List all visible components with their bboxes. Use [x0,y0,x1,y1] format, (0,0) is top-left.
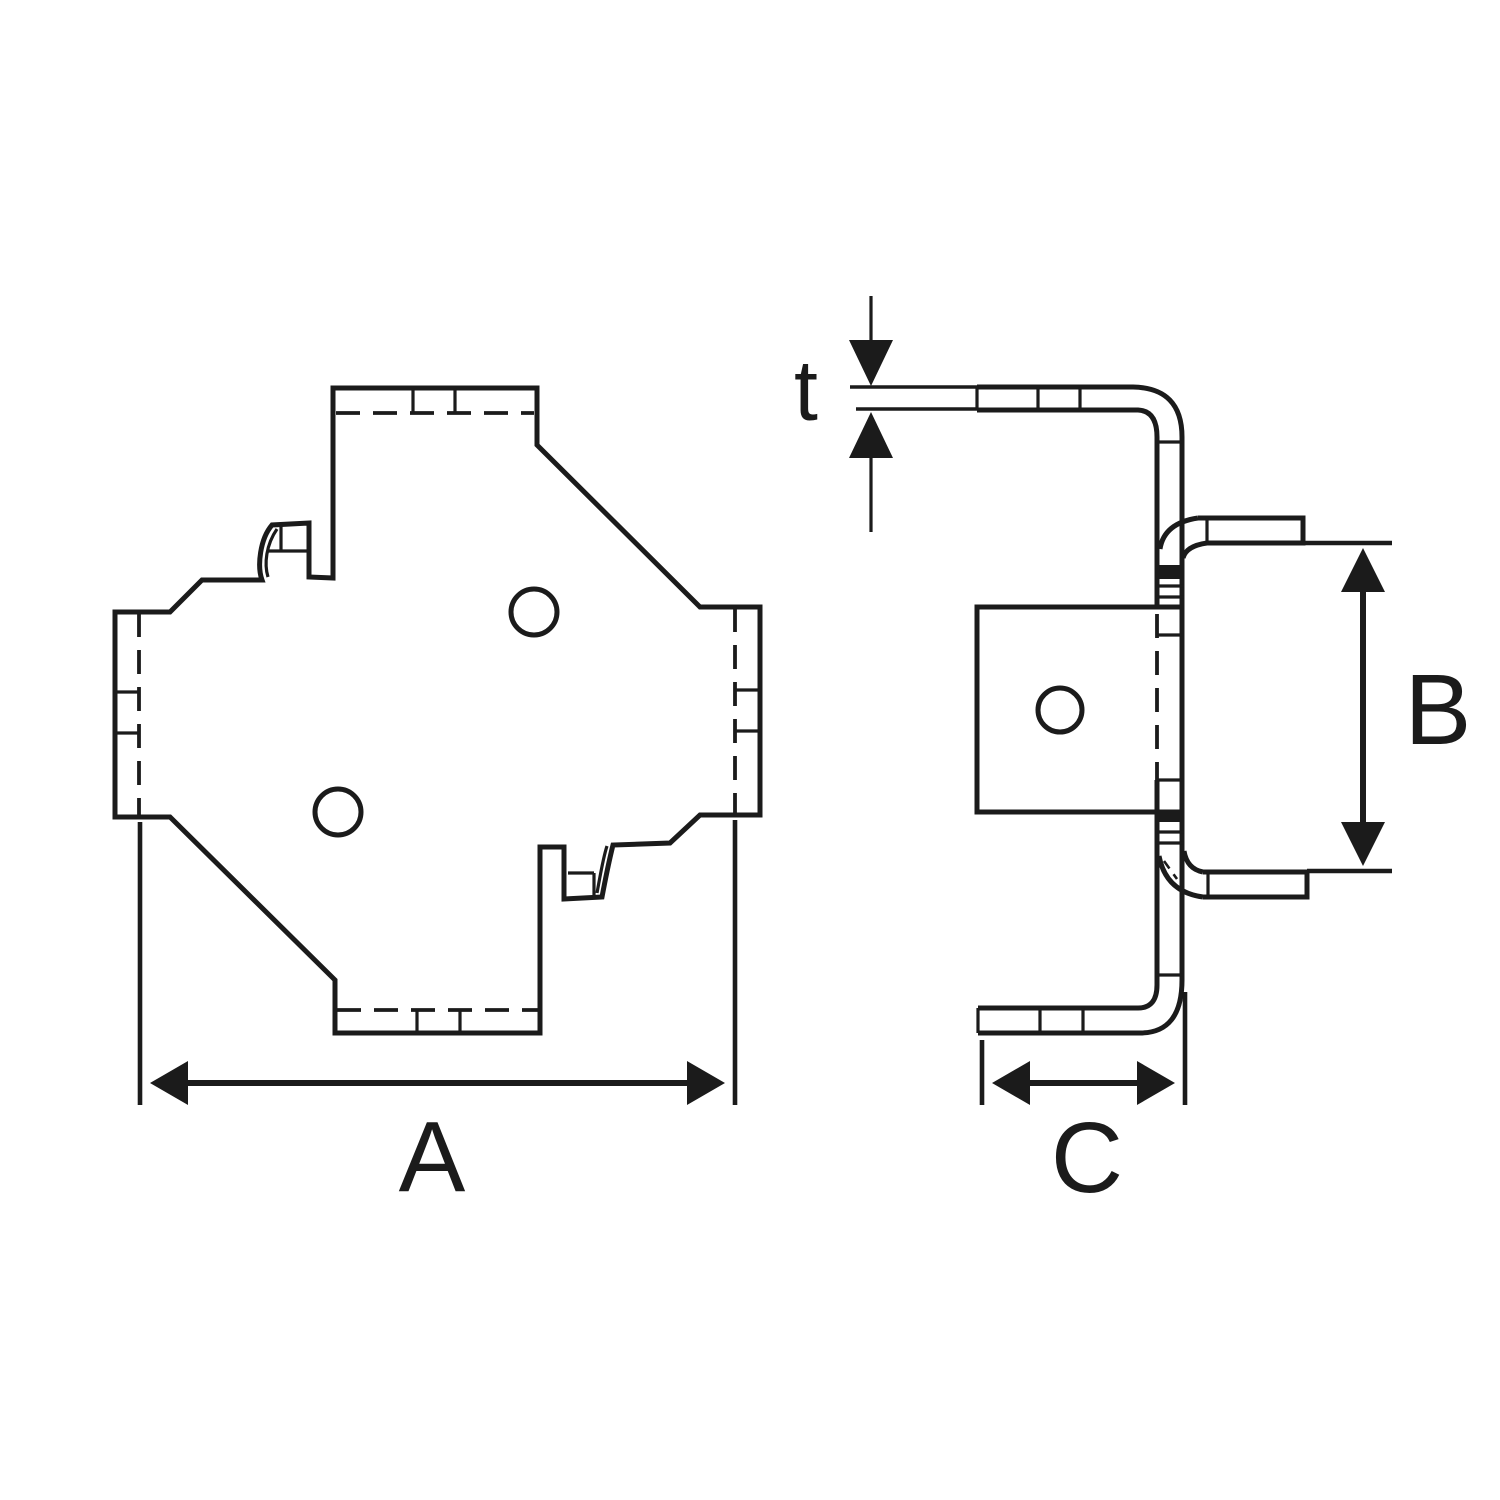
dimension-c-label: C [1051,1102,1123,1214]
diagram-canvas: A [0,0,1500,1500]
dimension-b-arrowhead-bottom [1341,822,1385,866]
dimension-t: t [794,296,893,532]
dimension-a-label: A [399,1101,466,1213]
side-view-upper-tab-fold-inner [1160,518,1198,549]
dimension-b-arrowhead-top [1341,548,1385,592]
side-view-hole [1038,688,1082,732]
dimension-c-arrowhead-left [992,1061,1030,1105]
front-view-left-blade-ticks [115,692,139,733]
side-view-upper-tab-outline [1198,518,1303,543]
dimension-b: B [1303,543,1471,871]
side-view-inner-profile-top [977,410,1157,608]
front-view-lower-hole [315,789,361,835]
dimension-t-arrowhead-up [849,412,893,458]
side-view-upper-tab-fold-outer [1183,543,1207,558]
side-view-bottom-bar-ticks [978,1008,1083,1033]
front-view-upper-hole [511,589,557,635]
side-view-lower-tab-fold-outer [1184,851,1203,872]
side-view-thin-tab-lines [850,387,977,409]
front-view-top-blade-ticks [413,389,455,413]
side-view-lower-tab [1155,812,1307,897]
side-view: t B C [794,296,1471,1214]
side-view-upper-tab-fold-fill [1155,565,1184,579]
dimension-c-arrowhead-right [1137,1061,1175,1105]
front-view-outline [115,388,760,1033]
front-view-detent-bottom-lines [568,873,594,898]
front-view-bottom-blade-ticks [417,1010,460,1032]
dimension-a-arrowhead-left [150,1061,188,1105]
dimension-b-extension-lines [1303,543,1392,871]
front-view-right-blade-ticks [735,690,760,731]
dimension-b-label: B [1405,654,1472,766]
dimension-a-arrowhead-right [687,1061,725,1105]
technical-drawing: A [0,0,1500,1500]
front-view: A [115,388,760,1213]
dimension-t-arrowhead-down [849,340,893,386]
side-view-lower-tab-outline [1203,872,1307,897]
side-view-upper-tab [1155,518,1303,579]
dimension-a-extension-lines [140,820,735,1105]
side-view-lower-tab-fold-fill [1155,812,1184,822]
side-view-top-bar-ticks [977,387,1080,410]
dimension-t-label: t [794,343,818,439]
